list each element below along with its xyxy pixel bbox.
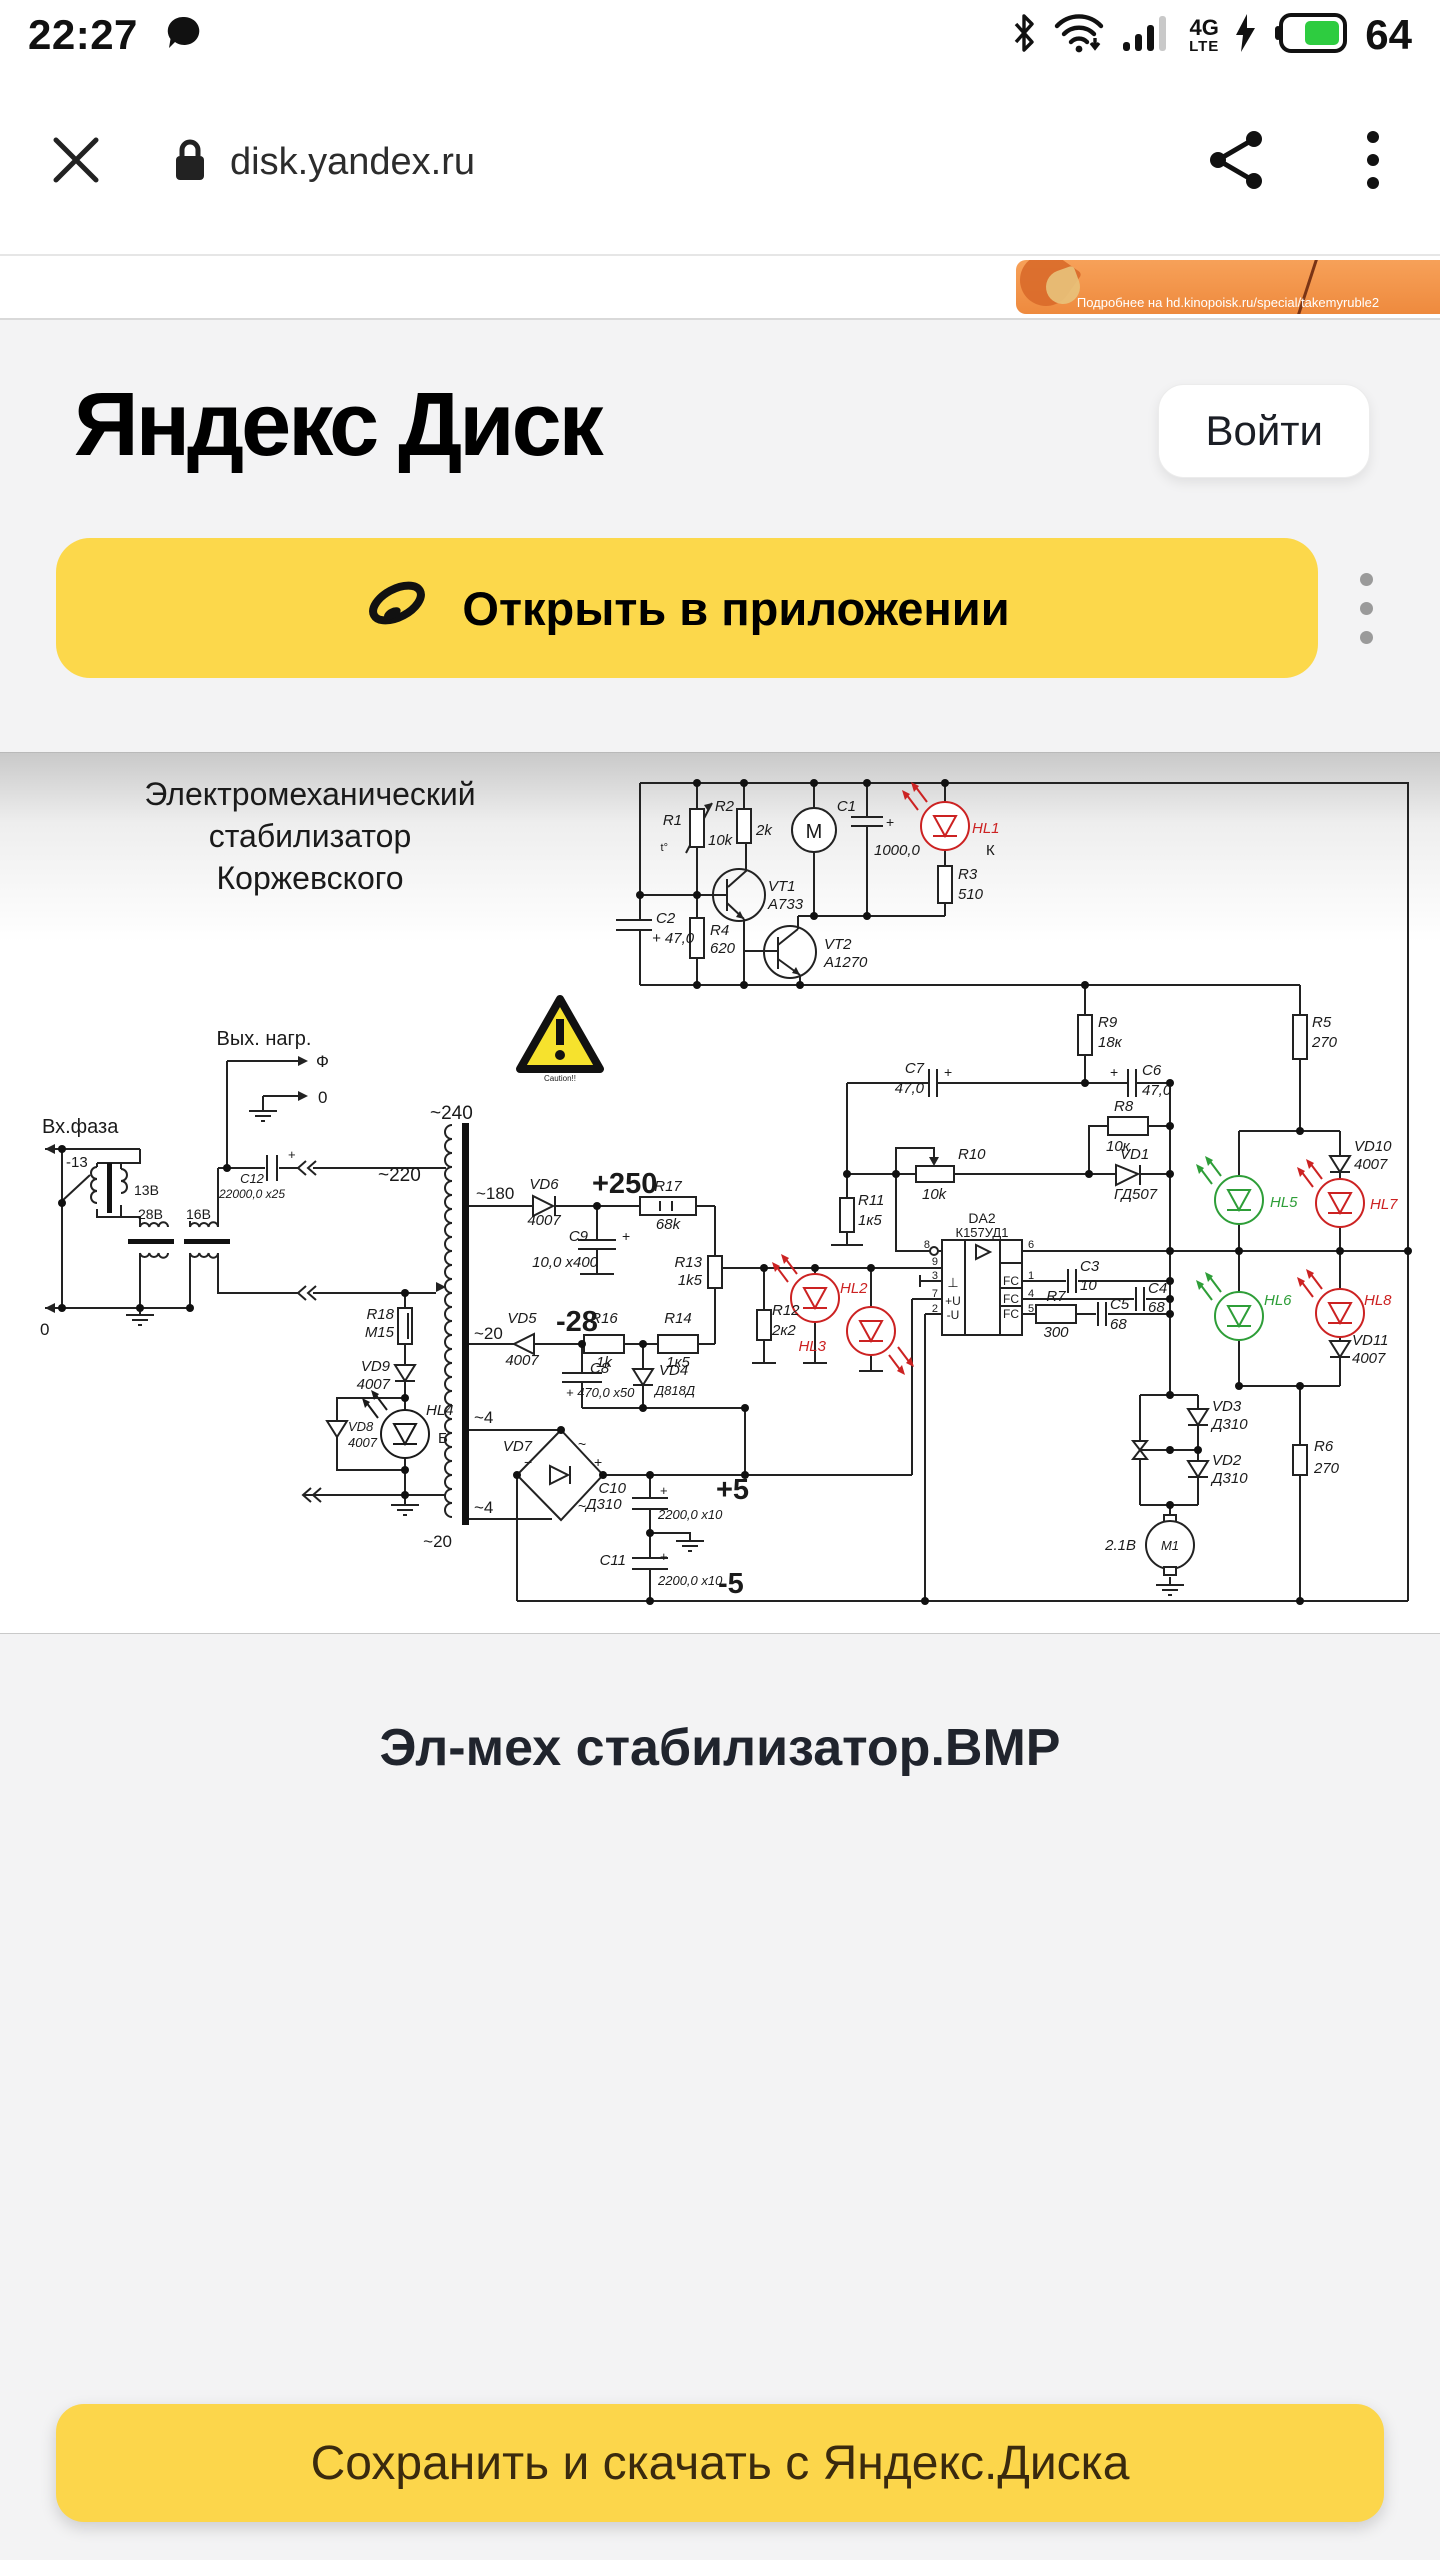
svg-text:~4: ~4 — [474, 1408, 493, 1427]
svg-text:VD9: VD9 — [361, 1358, 391, 1375]
svg-text:10k: 10k — [922, 1186, 948, 1203]
svg-text:HL4: HL4 — [426, 1402, 454, 1419]
svg-text:4007: 4007 — [348, 1435, 378, 1450]
wifi-icon — [1053, 12, 1105, 59]
svg-text:2к2: 2к2 — [771, 1322, 796, 1339]
svg-text:+: + — [944, 1064, 952, 1080]
svg-text:HL6: HL6 — [1264, 1292, 1292, 1309]
yandex-disk-logo-icon — [364, 570, 430, 647]
svg-text:VD11: VD11 — [1352, 1332, 1388, 1349]
lock-icon — [170, 136, 210, 189]
svg-text:4007: 4007 — [1354, 1156, 1388, 1173]
svg-text:~180: ~180 — [476, 1184, 514, 1203]
svg-text:R1: R1 — [663, 812, 682, 829]
svg-text:13В: 13В — [134, 1182, 159, 1198]
svg-text:VD2: VD2 — [1212, 1452, 1242, 1469]
svg-text:C2: C2 — [656, 910, 676, 927]
address-bar[interactable]: disk.yandex.ru — [230, 141, 475, 184]
svg-text:68: 68 — [1110, 1316, 1127, 1333]
svg-text:HL3: HL3 — [798, 1338, 826, 1355]
open-app-menu-icon[interactable] — [1318, 573, 1414, 644]
svg-text:VT1: VT1 — [768, 878, 796, 895]
svg-text:+5: +5 — [716, 1474, 749, 1506]
svg-text:HL2: HL2 — [840, 1280, 868, 1297]
signal-bars-icon — [1121, 12, 1173, 59]
svg-text:9: 9 — [932, 1256, 938, 1268]
svg-text:−: − — [524, 1454, 532, 1470]
svg-text:510: 510 — [958, 886, 984, 903]
svg-text:R2: R2 — [715, 798, 735, 815]
svg-text:VT2: VT2 — [824, 936, 852, 953]
charging-bolt-icon — [1235, 13, 1257, 58]
svg-text:47,0: 47,0 — [895, 1080, 925, 1097]
svg-text:4007: 4007 — [505, 1352, 539, 1369]
svg-text:1000,0: 1000,0 — [874, 842, 921, 859]
svg-text:VD1: VD1 — [1120, 1146, 1149, 1163]
open-in-app-label: Открыть в приложении — [462, 581, 1009, 636]
svg-text:7: 7 — [932, 1288, 938, 1300]
svg-text:R9: R9 — [1098, 1014, 1118, 1031]
svg-text:C5: C5 — [1110, 1296, 1130, 1313]
page-header: Яндекс Диск Войти — [0, 320, 1440, 478]
svg-text:68: 68 — [1148, 1299, 1165, 1316]
svg-text:C6: C6 — [1142, 1062, 1162, 1079]
svg-text:0: 0 — [318, 1088, 327, 1107]
svg-text:R18: R18 — [366, 1306, 394, 1323]
svg-text:VD6: VD6 — [529, 1176, 559, 1193]
svg-text:4: 4 — [1028, 1288, 1034, 1300]
svg-text:+: + — [660, 1549, 668, 1564]
svg-text:FC: FC — [1003, 1307, 1019, 1321]
svg-text:R17: R17 — [654, 1178, 682, 1195]
svg-text:4007: 4007 — [1352, 1350, 1386, 1367]
schematic-svg: ЭлектромеханическийстабилизаторКоржевско… — [0, 753, 1440, 1633]
svg-text:+ 470,0 x50: + 470,0 x50 — [566, 1385, 635, 1400]
banner-caption: Подробнее на hd.kinopoisk.ru/special/tak… — [1016, 295, 1440, 310]
svg-text:28В: 28В — [138, 1206, 163, 1222]
svg-text:R5: R5 — [1312, 1014, 1332, 1031]
svg-text:ГД507: ГД507 — [1114, 1186, 1158, 1203]
svg-text:Коржевского: Коржевского — [217, 860, 404, 896]
svg-text:C8: C8 — [590, 1360, 610, 1377]
svg-text:VD7: VD7 — [503, 1438, 533, 1455]
svg-text:~20: ~20 — [474, 1324, 503, 1343]
svg-text:К157УД1: К157УД1 — [956, 1225, 1009, 1240]
svg-text:R13: R13 — [674, 1254, 702, 1271]
svg-text:0: 0 — [40, 1320, 49, 1339]
svg-text:10k: 10k — [708, 832, 734, 849]
svg-text:FC: FC — [1003, 1292, 1019, 1306]
svg-text:47,0: 47,0 — [1142, 1082, 1172, 1099]
file-name: Эл-мех стабилизатор.BMP — [0, 1634, 1440, 1778]
svg-text:8: 8 — [924, 1239, 930, 1251]
file-preview[interactable]: ЭлектромеханическийстабилизаторКоржевско… — [0, 752, 1440, 1634]
svg-text:R12: R12 — [772, 1302, 800, 1319]
svg-text:VD8: VD8 — [348, 1419, 374, 1434]
battery-icon — [1273, 12, 1349, 59]
svg-text:Ф: Ф — [316, 1052, 329, 1071]
svg-text:2k: 2k — [755, 822, 773, 839]
chat-bubble-icon — [164, 13, 204, 58]
svg-text:+250: +250 — [592, 1168, 657, 1200]
svg-text:1k5: 1k5 — [678, 1272, 703, 1289]
banner-row: Подробнее на hd.kinopoisk.ru/special/tak… — [0, 254, 1440, 320]
network-type-badge: 4G LTE — [1189, 17, 1219, 54]
svg-text:+: + — [886, 814, 894, 830]
svg-text:~220: ~220 — [378, 1165, 421, 1186]
svg-text:5: 5 — [1028, 1303, 1034, 1315]
svg-text:Д818Д: Д818Д — [653, 1383, 695, 1398]
svg-text:+: + — [622, 1228, 630, 1244]
close-icon[interactable] — [50, 134, 102, 191]
svg-text:C3: C3 — [1080, 1258, 1100, 1275]
svg-text:HL1: HL1 — [972, 820, 1000, 837]
svg-text:~: ~ — [578, 1436, 586, 1452]
svg-text:Д310: Д310 — [584, 1496, 622, 1513]
svg-text:10: 10 — [1080, 1277, 1097, 1294]
svg-text:270: 270 — [1311, 1034, 1338, 1051]
open-app-row: Открыть в приложении — [56, 538, 1414, 678]
svg-text:M: M — [806, 821, 823, 843]
svg-text:2200,0 x10: 2200,0 x10 — [657, 1573, 723, 1588]
svg-text:R6: R6 — [1314, 1438, 1334, 1455]
svg-text:A1270: A1270 — [823, 954, 868, 971]
svg-text:2200,0 x10: 2200,0 x10 — [657, 1507, 723, 1522]
svg-text:-U: -U — [947, 1308, 960, 1322]
browser-toolbar: disk.yandex.ru — [0, 70, 1440, 254]
svg-text:6: 6 — [1028, 1239, 1034, 1251]
warning-triangle-icon — [520, 999, 600, 1069]
svg-text:R11: R11 — [858, 1192, 884, 1209]
svg-text:-13: -13 — [66, 1154, 88, 1171]
svg-text:R8: R8 — [1114, 1098, 1134, 1115]
svg-text:A733: A733 — [767, 896, 804, 913]
svg-text:~4: ~4 — [474, 1498, 493, 1517]
page-title: Яндекс Диск — [74, 374, 601, 477]
svg-text:C4: C4 — [1148, 1280, 1167, 1297]
svg-text:+ 47,0: + 47,0 — [652, 930, 695, 947]
svg-text:FC: FC — [1003, 1274, 1019, 1288]
svg-text:C11: C11 — [600, 1552, 626, 1569]
svg-text:C1: C1 — [837, 798, 856, 815]
battery-percent: 64 — [1365, 11, 1412, 59]
svg-text:Вых. нагр.: Вых. нагр. — [217, 1028, 312, 1050]
svg-text:18к: 18к — [1098, 1034, 1123, 1051]
open-in-app-button[interactable]: Открыть в приложении — [56, 538, 1318, 678]
svg-text:Б: Б — [438, 1430, 448, 1447]
save-download-button[interactable]: Сохранить и скачать с Яндекс.Диска — [56, 2404, 1384, 2522]
svg-text:Электромеханический: Электромеханический — [144, 776, 475, 812]
svg-text:R4: R4 — [710, 922, 729, 939]
svg-text:270: 270 — [1313, 1460, 1340, 1477]
svg-text:Д310: Д310 — [1210, 1470, 1248, 1487]
svg-text:2: 2 — [932, 1303, 938, 1315]
svg-text:R14: R14 — [664, 1310, 692, 1327]
svg-text:стабилизатор: стабилизатор — [209, 818, 412, 854]
svg-text:Д310: Д310 — [1210, 1416, 1248, 1433]
svg-text:VD10: VD10 — [1354, 1138, 1392, 1155]
svg-text:+U: +U — [945, 1294, 961, 1308]
svg-text:22000,0 x25: 22000,0 x25 — [218, 1187, 285, 1201]
svg-text:68k: 68k — [656, 1216, 682, 1233]
svg-text:300: 300 — [1043, 1324, 1069, 1341]
share-icon[interactable] — [1208, 129, 1270, 196]
svg-text:M1: M1 — [1161, 1538, 1179, 1553]
svg-text:4007: 4007 — [527, 1212, 561, 1229]
svg-text:~: ~ — [578, 1498, 586, 1514]
svg-text:Вх.фаза: Вх.фаза — [42, 1116, 119, 1138]
svg-text:+: + — [594, 1454, 602, 1470]
svg-text:VD3: VD3 — [1212, 1398, 1242, 1415]
svg-text:R7: R7 — [1046, 1288, 1066, 1305]
svg-text:2.1В: 2.1В — [1104, 1537, 1136, 1554]
svg-text:DA2: DA2 — [968, 1210, 995, 1226]
svg-text:R16: R16 — [590, 1310, 618, 1327]
svg-text:4007: 4007 — [357, 1376, 391, 1393]
svg-text:620: 620 — [710, 940, 736, 957]
promo-banner[interactable]: Подробнее на hd.kinopoisk.ru/special/tak… — [1016, 260, 1440, 314]
clock: 22:27 — [28, 11, 138, 59]
svg-text:1: 1 — [1028, 1270, 1034, 1282]
svg-text:16В: 16В — [186, 1206, 211, 1222]
svg-text:-5: -5 — [718, 1568, 744, 1600]
svg-text:C10: C10 — [598, 1480, 626, 1497]
bluetooth-icon — [1011, 13, 1037, 58]
svg-text:10,0 x400: 10,0 x400 — [532, 1254, 599, 1271]
browser-menu-icon[interactable] — [1366, 129, 1380, 196]
svg-text:C9: C9 — [569, 1228, 589, 1245]
svg-text:+: + — [660, 1483, 668, 1498]
status-bar: 22:27 4G LTE — [0, 0, 1440, 70]
svg-text:~20: ~20 — [423, 1532, 452, 1551]
svg-text:C7: C7 — [905, 1060, 925, 1077]
svg-text:К: К — [986, 842, 995, 859]
svg-text:VD5: VD5 — [507, 1310, 537, 1327]
svg-text:3: 3 — [932, 1270, 938, 1282]
svg-text:+: + — [1110, 1064, 1118, 1080]
svg-text:HL8: HL8 — [1364, 1292, 1392, 1309]
svg-text:VD4: VD4 — [659, 1362, 688, 1379]
login-button[interactable]: Войти — [1158, 384, 1370, 478]
svg-text:~240: ~240 — [430, 1103, 473, 1124]
svg-text:t°: t° — [661, 842, 668, 854]
svg-text:R3: R3 — [958, 866, 978, 883]
svg-text:R10: R10 — [958, 1146, 986, 1163]
svg-text:HL5: HL5 — [1270, 1194, 1298, 1211]
svg-text:⊥: ⊥ — [947, 1275, 958, 1290]
svg-text:Caution!!: Caution!! — [544, 1074, 576, 1083]
svg-text:1к5: 1к5 — [858, 1212, 882, 1229]
svg-text:HL7: HL7 — [1370, 1196, 1398, 1213]
svg-text:M15: M15 — [365, 1324, 395, 1341]
svg-text:+: + — [288, 1147, 296, 1162]
svg-text:C12: C12 — [240, 1171, 265, 1186]
